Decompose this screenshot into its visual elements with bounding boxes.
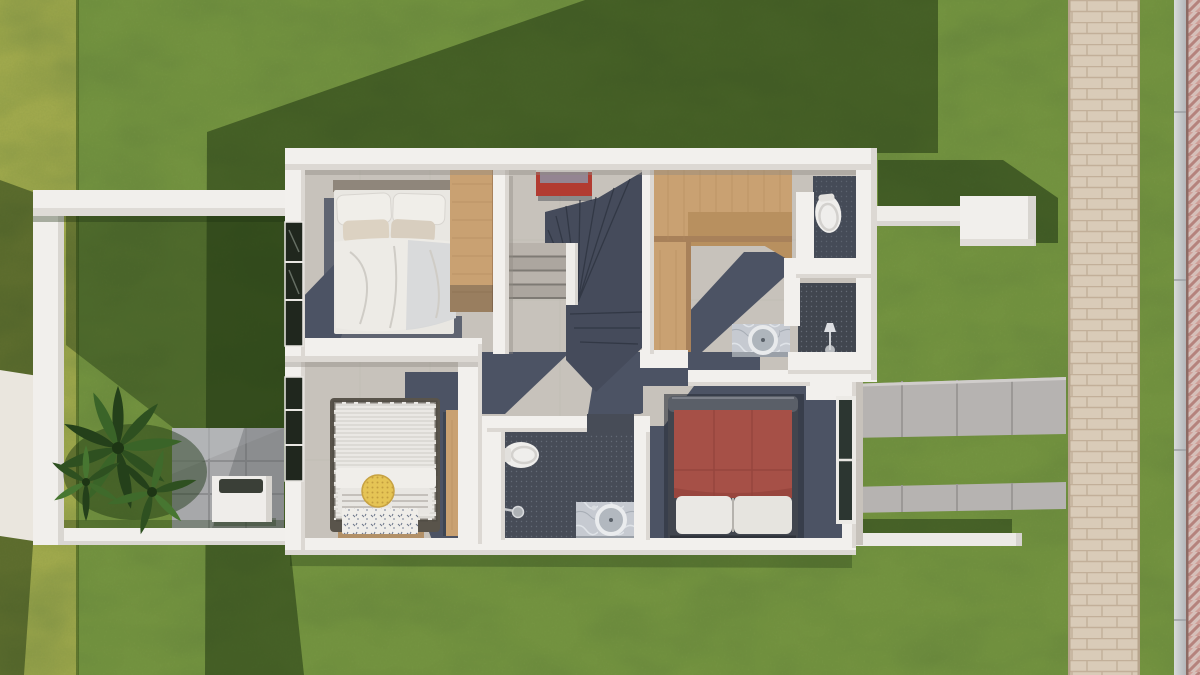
yard-wall-north-face — [33, 208, 287, 216]
wall-bedroom3-corner — [806, 370, 856, 400]
herringbone-pavement — [1188, 0, 1200, 675]
palm-crown — [147, 487, 157, 497]
window-bedroom1 — [285, 222, 303, 346]
vanity-hall — [732, 324, 790, 357]
canopy-box-face-east — [1028, 196, 1036, 246]
window-bedroom2 — [285, 377, 303, 481]
closet-bar-face — [652, 236, 792, 242]
bed-bottom-left — [330, 398, 440, 538]
yellow-round-pillow — [362, 475, 394, 507]
bed3-pillow — [676, 496, 732, 534]
palm-crown — [112, 442, 124, 454]
wall-wc-west — [796, 192, 814, 264]
bath-mid-floor-dots — [798, 283, 859, 355]
scene-canvas — [0, 0, 1200, 675]
glass-door-bedroom3 — [836, 396, 856, 524]
toilet-bath2 — [503, 442, 539, 468]
palm-crown — [82, 478, 90, 486]
yard-wall-north-shadow — [33, 216, 287, 222]
canopy-box-face-south — [960, 239, 1034, 246]
canopy-box — [960, 196, 1034, 246]
closet-leg — [652, 242, 690, 352]
wardrobe-shade — [450, 285, 498, 312]
paver-walkway — [1068, 0, 1140, 675]
stair-newel-face — [575, 243, 578, 305]
herringbone-edge — [1186, 0, 1189, 675]
canopy-beam-face — [877, 221, 965, 226]
wall-closet-south-stub — [640, 350, 688, 368]
yard-wall-south-face — [64, 541, 287, 545]
wall-bathmid-west — [784, 258, 800, 326]
bed3-pillow — [734, 496, 792, 534]
planter-box — [212, 476, 276, 526]
vanity-bath2 — [576, 502, 636, 541]
bed3-red-duvet — [674, 410, 792, 498]
house-south-shadow — [290, 553, 852, 568]
closet-leg-face — [686, 242, 691, 352]
bed-bottom-right — [664, 394, 804, 546]
vanity2-drain — [609, 518, 613, 522]
bed-top-left — [333, 180, 456, 334]
bed2-blanket — [342, 508, 418, 534]
bath2-door-floor — [587, 414, 634, 434]
vanity1-drain — [761, 338, 765, 342]
yard-wall-west-face — [58, 190, 64, 545]
garden-beam-low — [846, 519, 1022, 546]
stair-treads — [506, 243, 566, 298]
vanity2-faucet — [592, 506, 597, 511]
